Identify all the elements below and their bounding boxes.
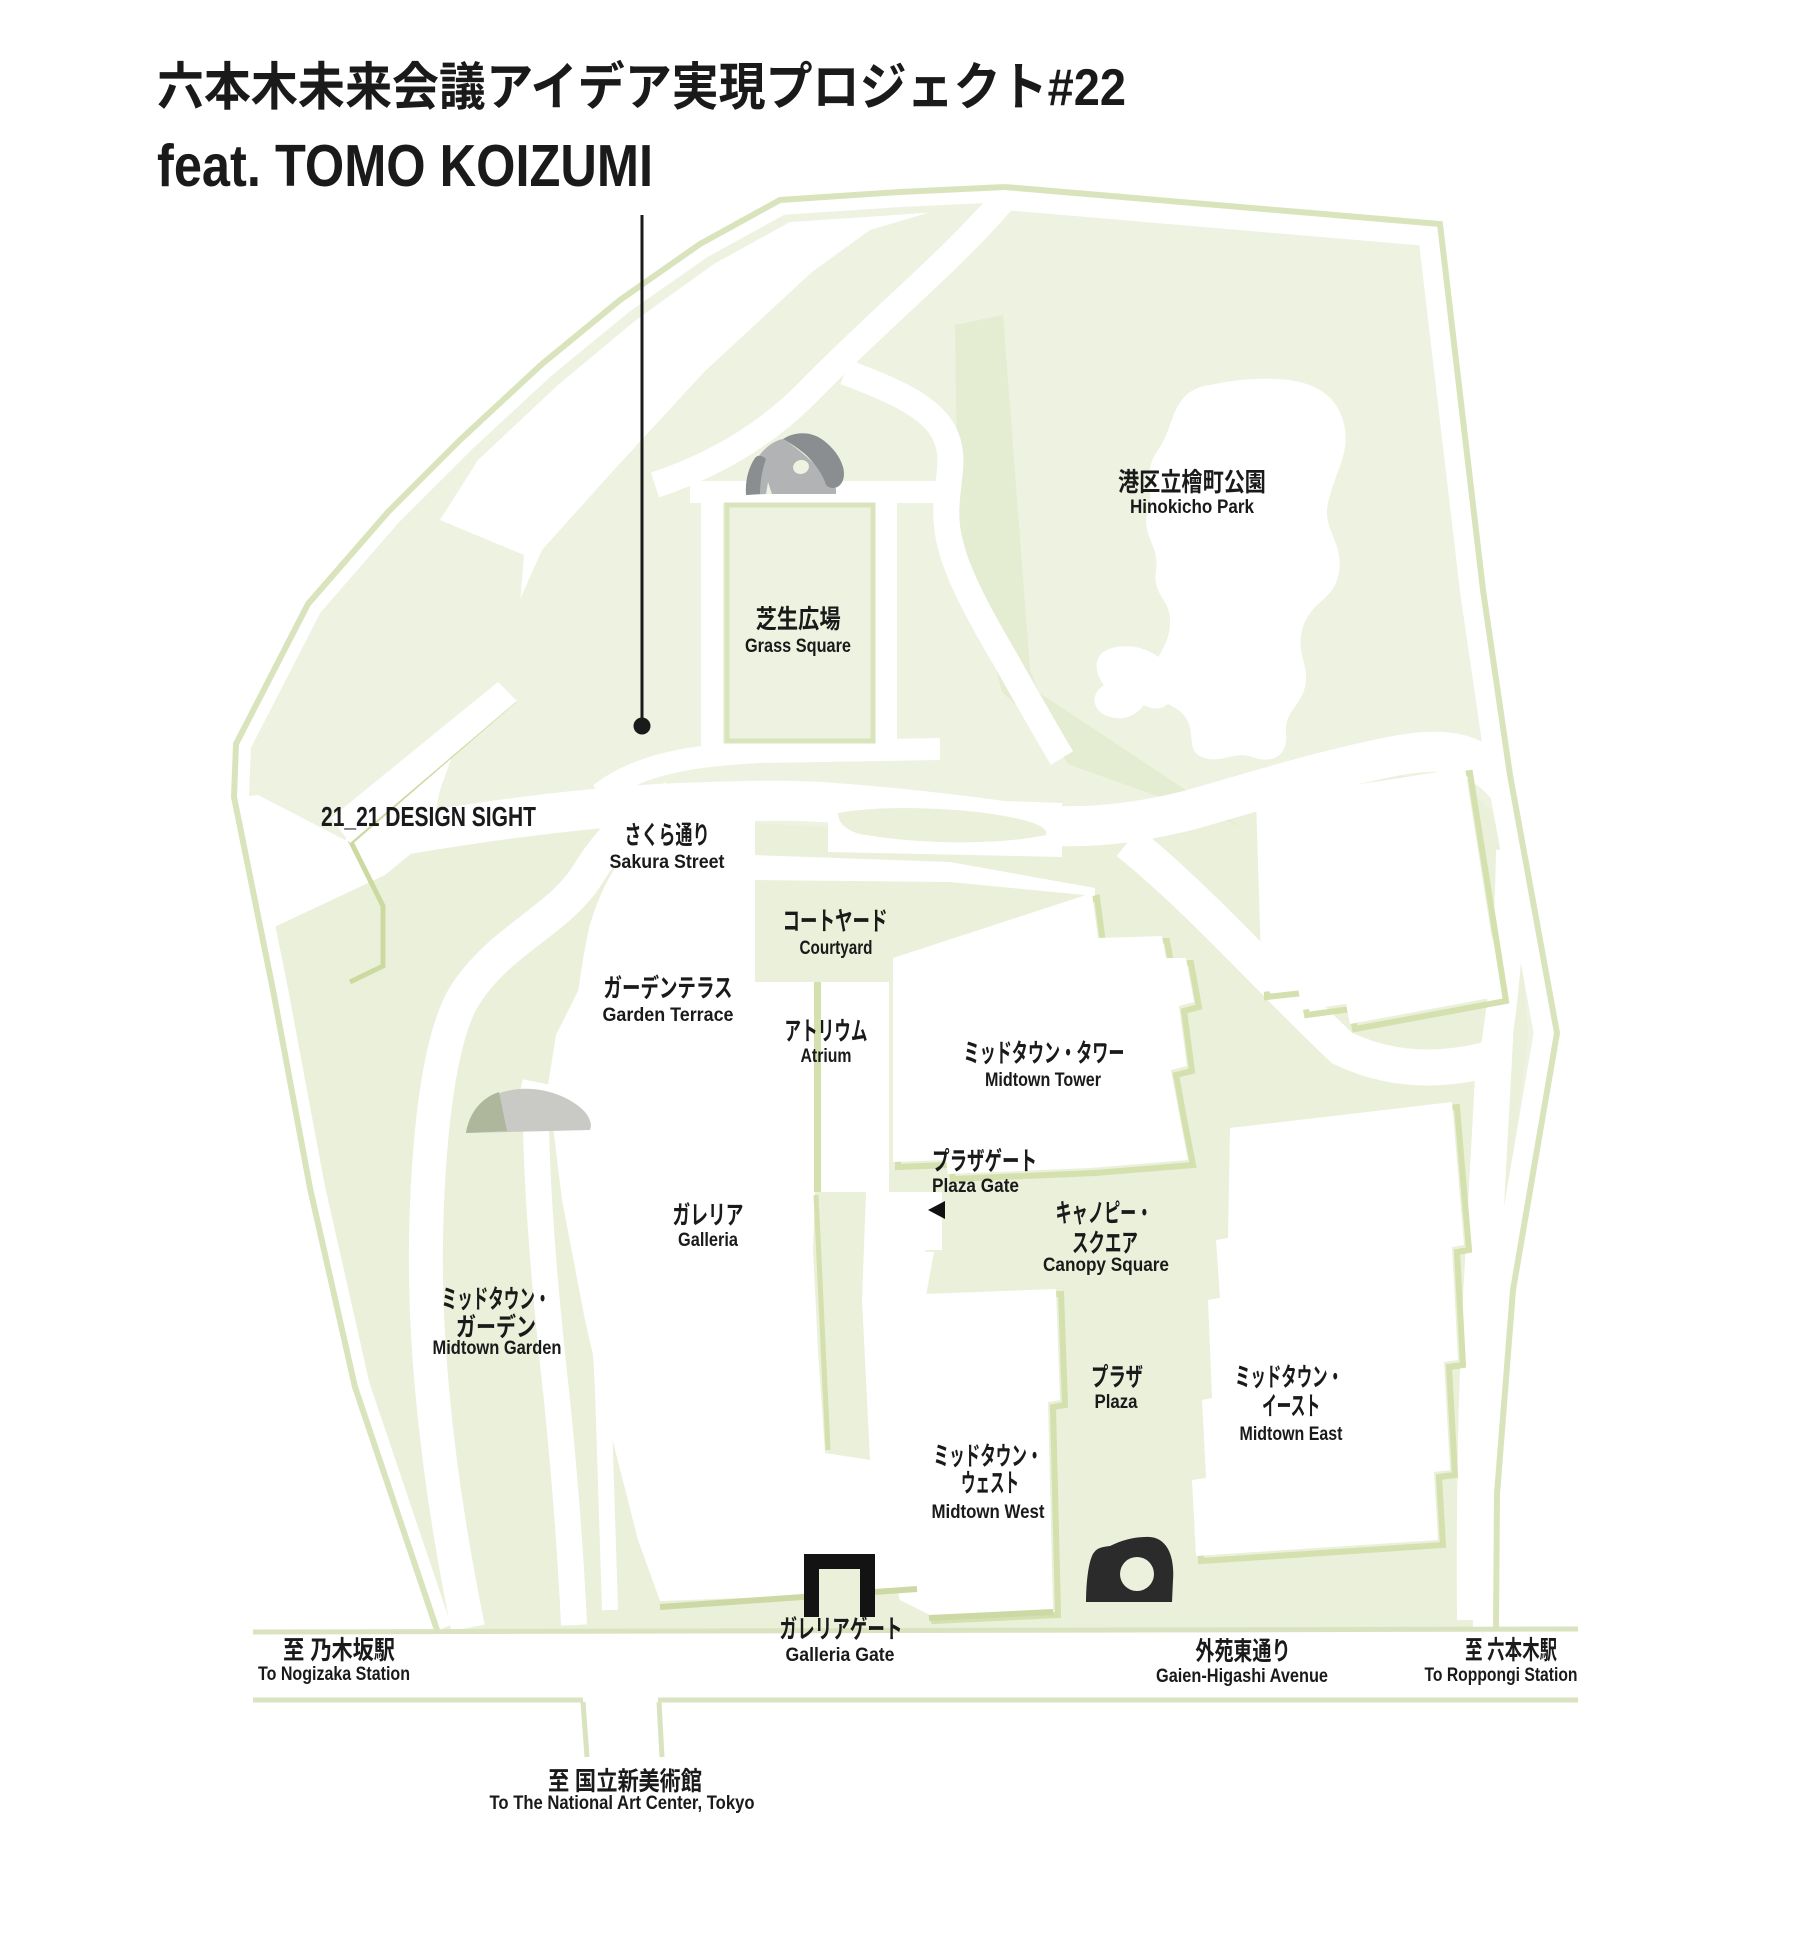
svg-text:Grass Square: Grass Square [745, 635, 851, 657]
svg-text:外苑東通り: 外苑東通り [1196, 1631, 1291, 1668]
svg-text:Sakura Street: Sakura Street [610, 851, 725, 873]
svg-text:Canopy Square: Canopy Square [1043, 1254, 1169, 1276]
svg-text:Midtown Garden: Midtown Garden [433, 1337, 562, 1359]
svg-text:Gaien-Higashi Avenue: Gaien-Higashi Avenue [1156, 1665, 1328, 1687]
svg-text:Courtyard: Courtyard [800, 937, 873, 959]
svg-text:イースト: イースト [1262, 1386, 1320, 1423]
svg-text:六本木未来会議アイデア実現プロジェクト#22: 六本木未来会議アイデア実現プロジェクト#22 [157, 45, 1126, 120]
svg-text:至 六本木駅: 至 六本木駅 [1465, 1630, 1558, 1667]
svg-text:ミッドタウン・タワー: ミッドタウン・タワー [964, 1033, 1125, 1070]
svg-text:Midtown East: Midtown East [1240, 1423, 1343, 1445]
svg-text:To The National Art Center, To: To The National Art Center, Tokyo [490, 1792, 755, 1814]
svg-text:To Roppongi Station: To Roppongi Station [1425, 1664, 1578, 1686]
svg-text:feat. TOMO KOIZUMI: feat. TOMO KOIZUMI [157, 133, 653, 199]
svg-text:ガーデンテラス: ガーデンテラス [604, 968, 733, 1005]
svg-text:至 乃木坂駅: 至 乃木坂駅 [283, 1630, 396, 1667]
svg-text:アトリウム: アトリウム [785, 1011, 868, 1048]
svg-text:Galleria Gate: Galleria Gate [786, 1644, 895, 1666]
svg-text:プラザ: プラザ [1091, 1357, 1143, 1394]
svg-text:Garden Terrace: Garden Terrace [603, 1004, 734, 1026]
svg-text:さくら通り: さくら通り [625, 815, 710, 852]
svg-text:Midtown Tower: Midtown Tower [985, 1069, 1101, 1091]
svg-text:Galleria: Galleria [678, 1229, 738, 1251]
svg-text:Plaza: Plaza [1095, 1391, 1138, 1413]
svg-text:Hinokicho Park: Hinokicho Park [1130, 496, 1254, 518]
svg-text:港区立檜町公園: 港区立檜町公園 [1118, 462, 1266, 499]
svg-text:21_21 DESIGN SIGHT: 21_21 DESIGN SIGHT [321, 801, 536, 832]
svg-text:Atrium: Atrium [801, 1045, 852, 1067]
svg-text:Midtown West: Midtown West [932, 1501, 1045, 1523]
svg-text:ウェスト: ウェスト [961, 1463, 1019, 1500]
svg-text:ガレリア: ガレリア [673, 1195, 744, 1232]
svg-text:Plaza Gate: Plaza Gate [932, 1175, 1019, 1197]
svg-text:プラザゲート: プラザゲート [932, 1141, 1037, 1178]
svg-text:To Nogizaka Station: To Nogizaka Station [258, 1663, 410, 1685]
svg-text:ガレリアゲート: ガレリアゲート [780, 1609, 903, 1646]
svg-text:芝生広場: 芝生広場 [756, 599, 841, 636]
svg-text:コートヤード: コートヤード [783, 901, 888, 938]
